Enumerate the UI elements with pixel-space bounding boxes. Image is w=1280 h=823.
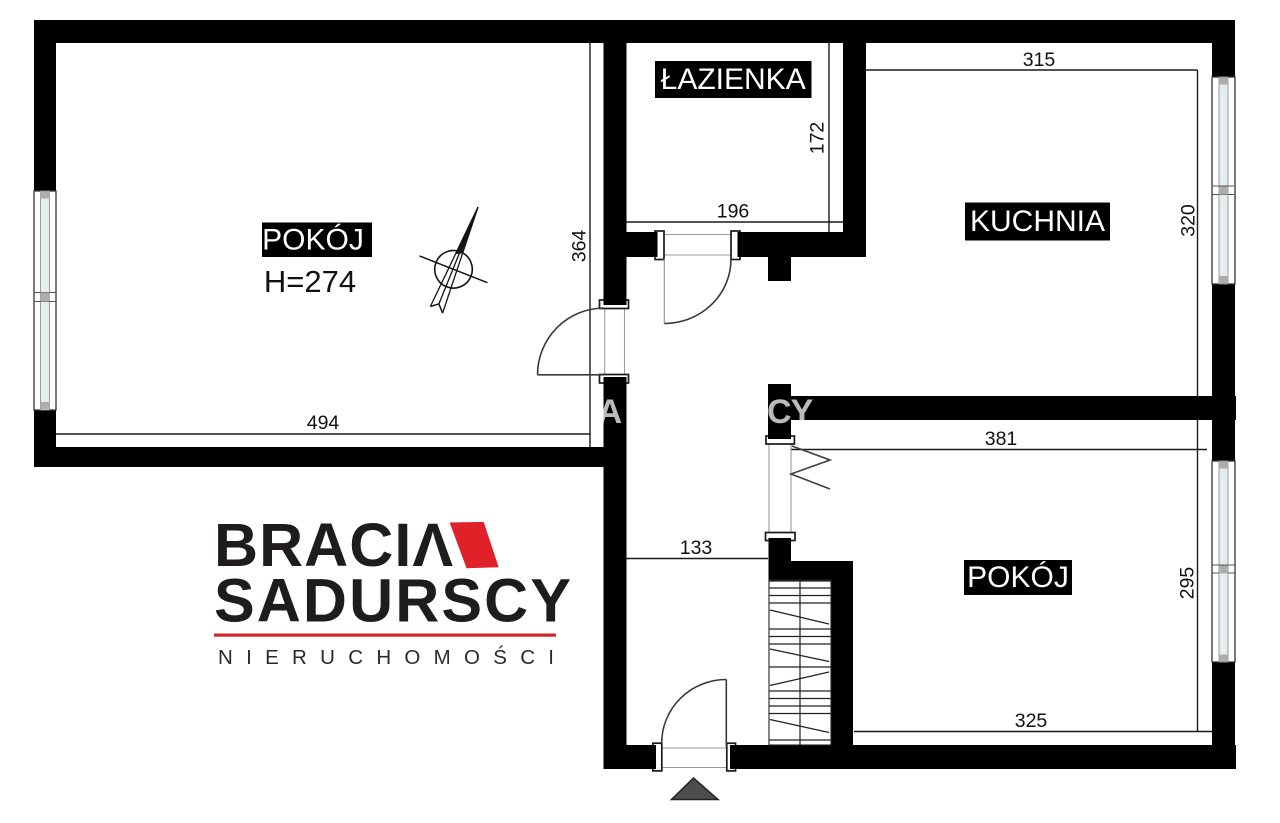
- svg-text:NIERUCHOMOŚCI: NIERUCHOMOŚCI: [218, 645, 554, 669]
- svg-text:364: 364: [569, 230, 591, 263]
- svg-text:ŁAZIENKA: ŁAZIENKA: [661, 63, 806, 96]
- svg-text:381: 381: [985, 428, 1018, 450]
- svg-text:320: 320: [1178, 204, 1200, 237]
- svg-text:172: 172: [807, 122, 829, 155]
- svg-text:315: 315: [1023, 49, 1056, 71]
- svg-text:H=274: H=274: [264, 264, 356, 299]
- svg-text:BRACIA SADURSCY: BRACIA SADURSCY: [494, 393, 813, 431]
- svg-text:KUCHNIA: KUCHNIA: [970, 205, 1105, 238]
- svg-text:325: 325: [1015, 710, 1048, 732]
- svg-text:133: 133: [680, 537, 713, 559]
- svg-text:POKÓJ: POKÓJ: [967, 561, 1069, 594]
- svg-text:SADURSCY: SADURSCY: [214, 567, 571, 635]
- svg-text:POKÓJ: POKÓJ: [262, 224, 364, 257]
- svg-text:494: 494: [307, 412, 340, 434]
- svg-text:295: 295: [1177, 567, 1199, 600]
- svg-text:196: 196: [717, 201, 750, 223]
